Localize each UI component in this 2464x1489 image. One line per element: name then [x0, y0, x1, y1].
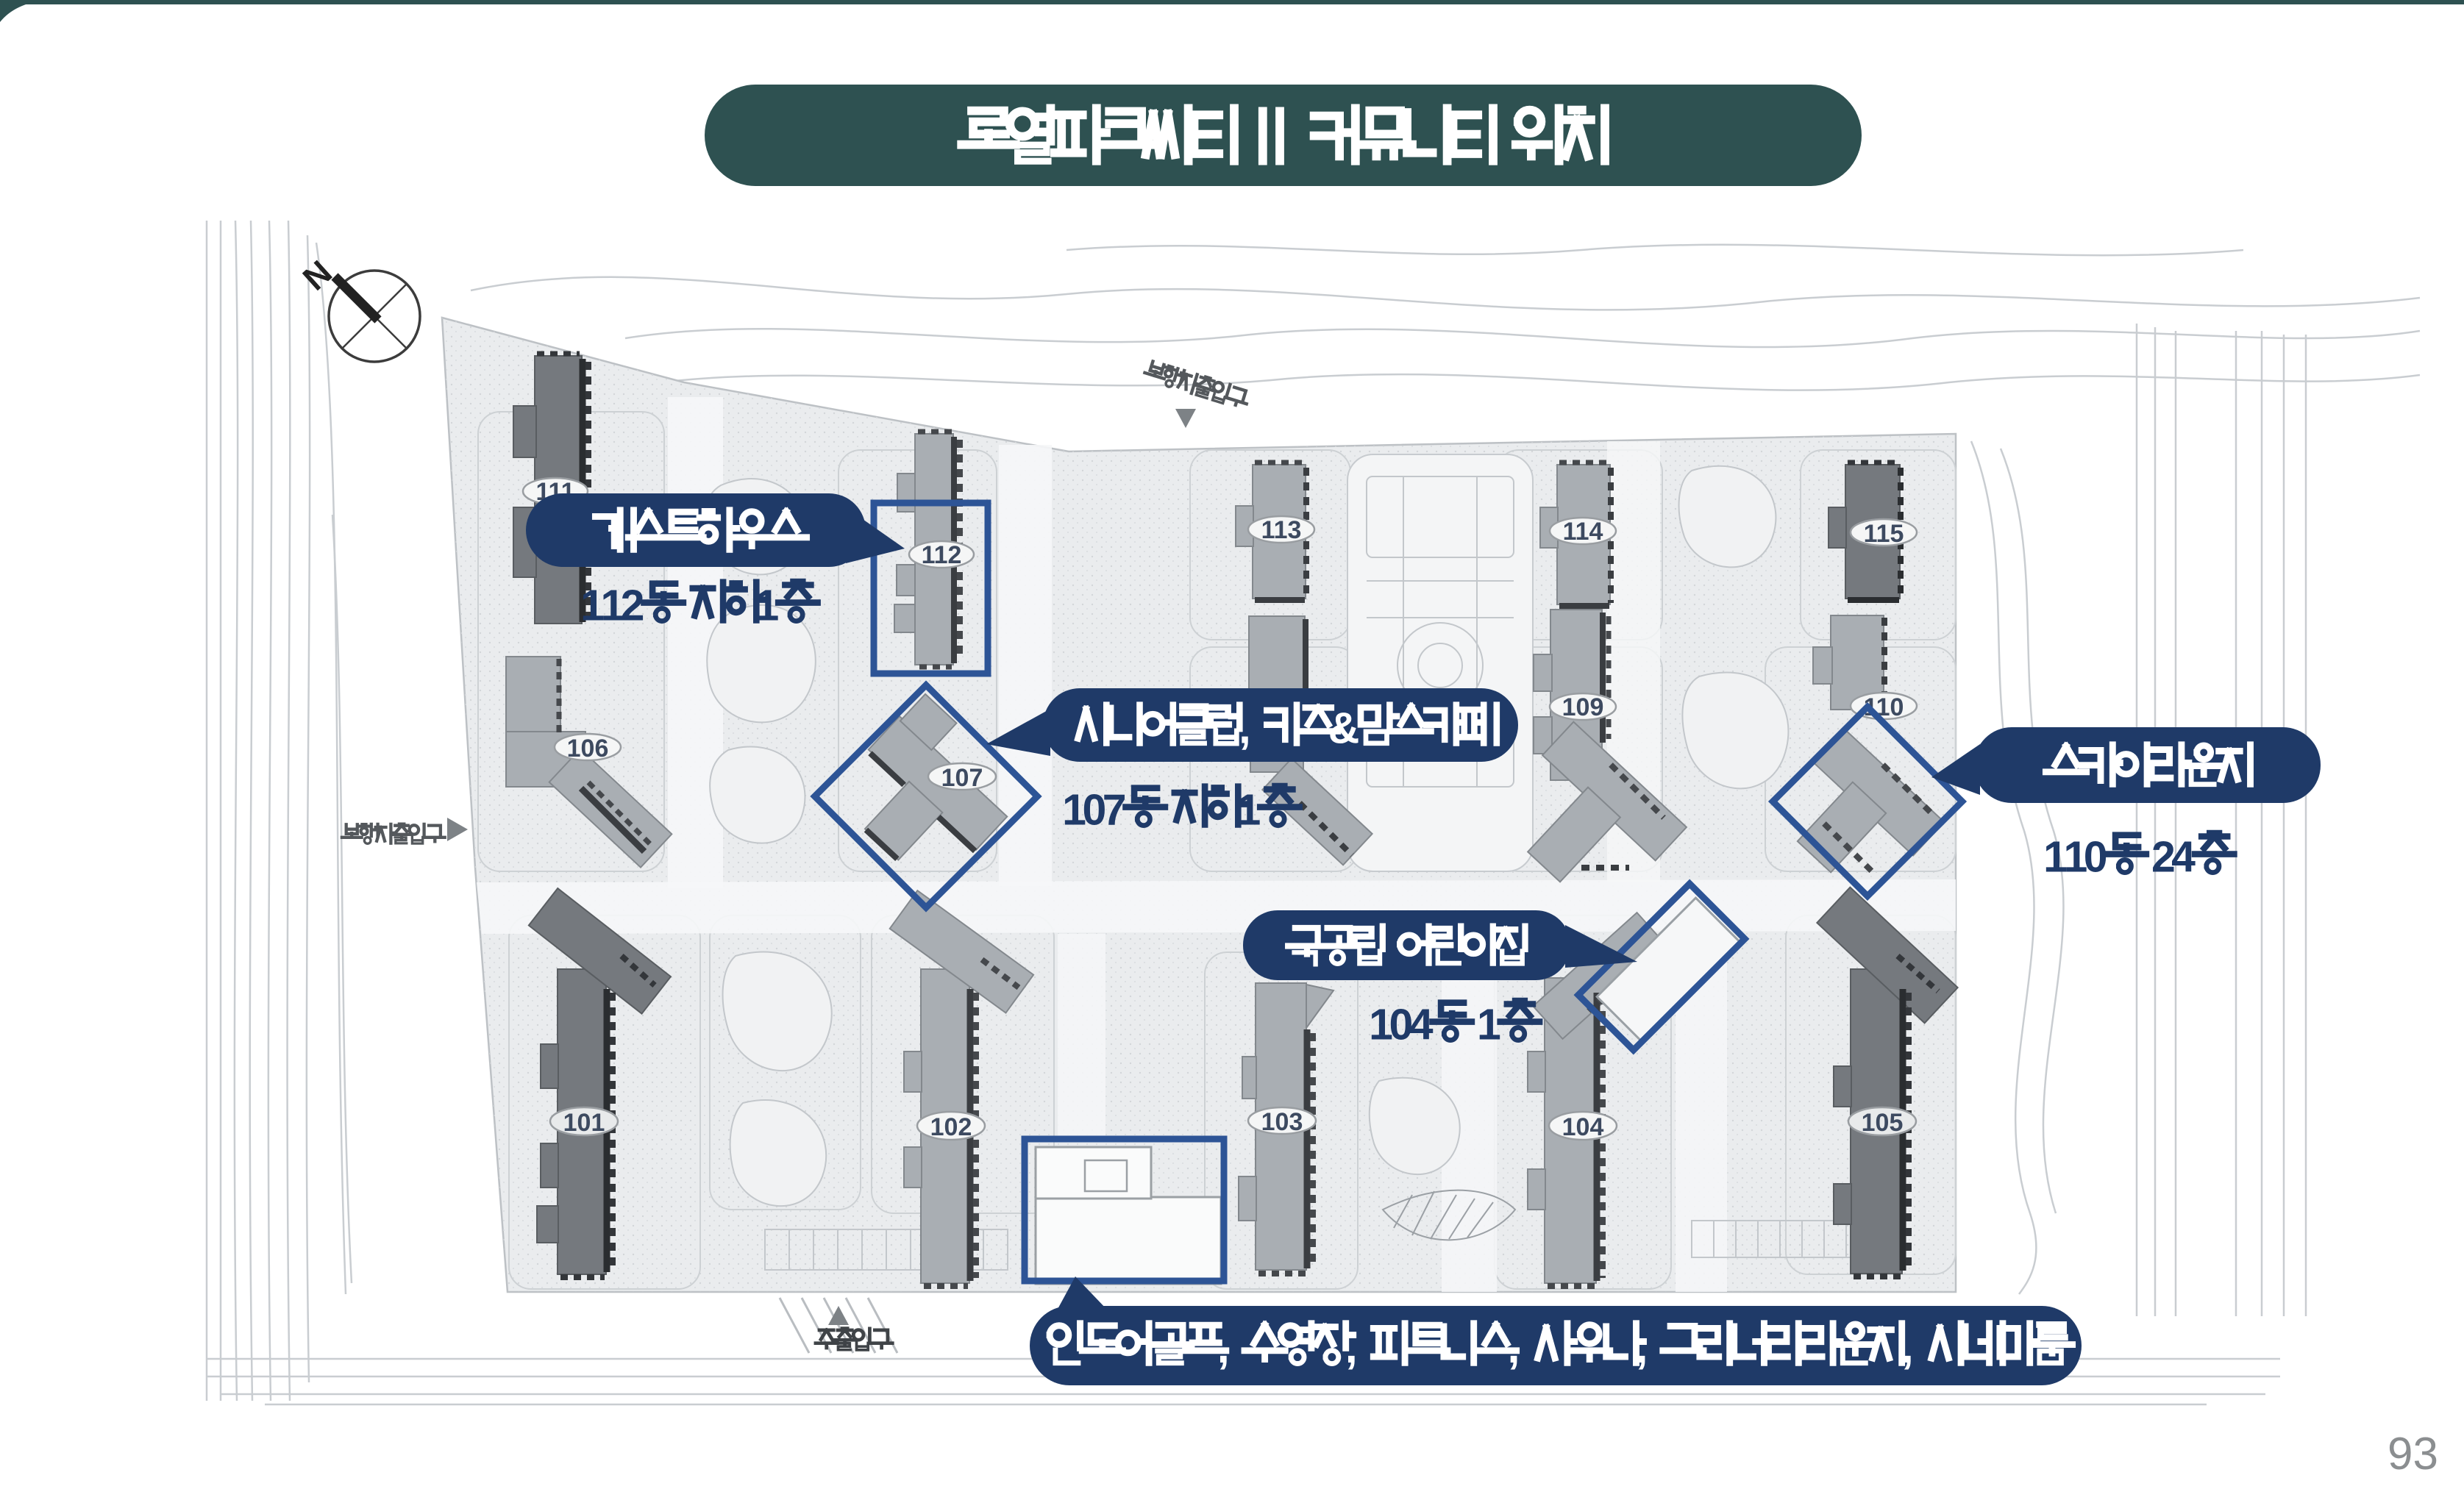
svg-text:,: ,	[1345, 1322, 1358, 1372]
svg-text:109: 109	[1562, 693, 1604, 721]
svg-text:113: 113	[1261, 516, 1302, 544]
svg-text:,: ,	[1636, 1322, 1648, 1372]
svg-text:1: 1	[755, 581, 779, 629]
svg-text:105: 105	[1862, 1109, 1904, 1137]
svg-text:112: 112	[922, 541, 962, 569]
svg-text:103: 103	[1261, 1108, 1303, 1136]
svg-text:7: 7	[1103, 785, 1127, 834]
svg-text:0: 0	[2084, 832, 2108, 881]
svg-text:115: 115	[1864, 520, 1904, 548]
svg-text:,: ,	[1901, 1322, 1914, 1372]
svg-text:2: 2	[621, 581, 645, 629]
svg-text:4: 4	[1409, 1000, 1434, 1049]
svg-text:1: 1	[1236, 785, 1261, 834]
svg-text:102: 102	[930, 1113, 972, 1141]
svg-text:,: ,	[1239, 704, 1250, 752]
svg-text:107: 107	[941, 764, 983, 792]
svg-text:&: &	[1328, 704, 1360, 752]
svg-text:,: ,	[1508, 1322, 1520, 1372]
svg-text:114: 114	[1563, 518, 1603, 546]
svg-text:,: ,	[1217, 1322, 1230, 1372]
svg-text:101: 101	[563, 1109, 605, 1137]
svg-text:N: N	[296, 253, 339, 298]
svg-text:93: 93	[2388, 1429, 2438, 1479]
svg-text:106: 106	[567, 735, 609, 763]
svg-text:4: 4	[2171, 832, 2196, 881]
svg-text:1: 1	[1477, 1000, 1501, 1049]
svg-text:104: 104	[1562, 1113, 1604, 1141]
